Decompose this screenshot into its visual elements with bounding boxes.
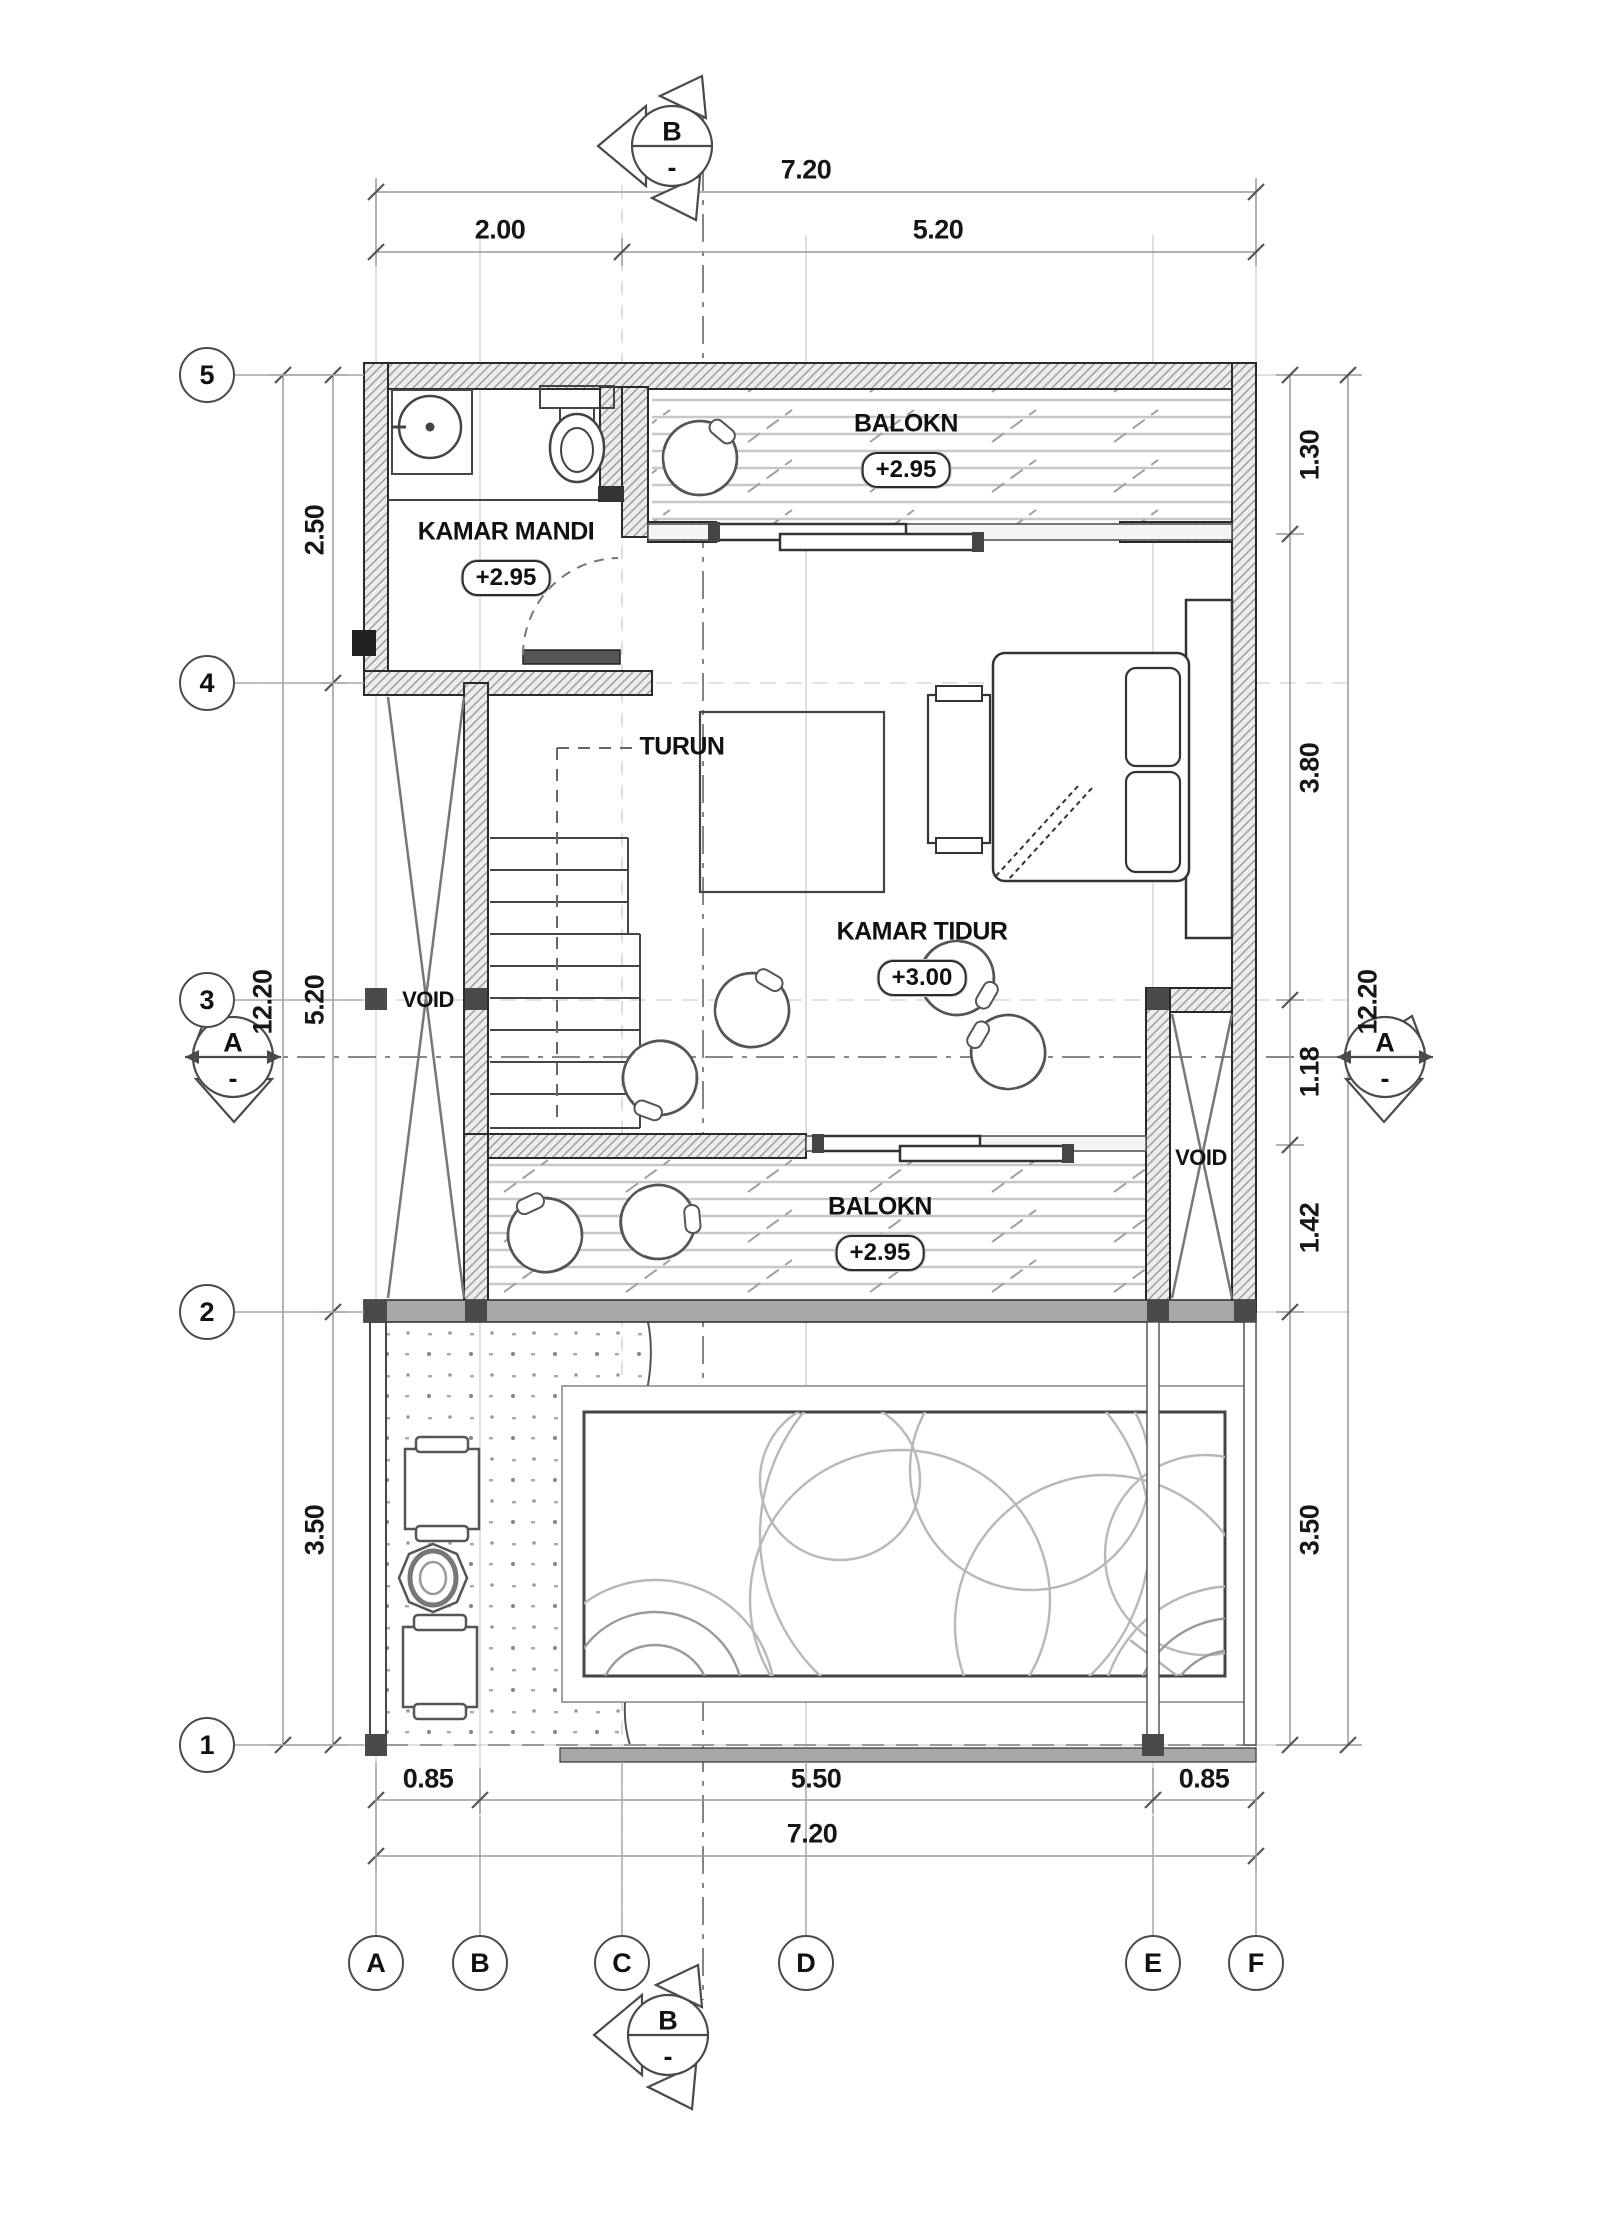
dim-right-seg-2: 3.80 (1295, 743, 1326, 794)
stairs (490, 748, 640, 1128)
dim-left-seg-2: 5.20 (300, 975, 331, 1026)
bed-pillow (1126, 668, 1180, 766)
wall-void-right-edge (1146, 988, 1170, 1312)
room-label-bathroom: KAMAR MANDI (418, 518, 594, 547)
dim-top-seg-1: 2.00 (475, 215, 526, 246)
level-badge-bedroom: +3.00 (878, 960, 967, 996)
grid-bubble-row-4: 4 (179, 655, 235, 711)
bed-bench (928, 695, 990, 843)
garden-furniture (399, 1437, 479, 1719)
balcony-mid-deck (488, 1158, 1146, 1300)
grid-bubble-row-1: 1 (179, 1717, 235, 1773)
section-a-right-sub: - (1381, 1064, 1390, 1095)
wall-balcony-mid-left (464, 1134, 488, 1312)
section-a-right-letter: A (1375, 1028, 1395, 1059)
dim-left-seg-3: 3.50 (300, 1505, 331, 1556)
dim-bottom-seg-3: 0.85 (1179, 1764, 1230, 1795)
section-b-top-letter: B (662, 117, 682, 148)
room-label-balcony-mid: BALOKN (828, 1193, 932, 1222)
dim-bottom-total: 7.20 (787, 1819, 838, 1850)
dim-right-seg-1: 1.30 (1295, 430, 1326, 481)
dim-bottom-seg-1: 0.85 (403, 1764, 454, 1795)
level-badge-balcony-mid: +2.95 (836, 1235, 925, 1271)
dim-right-seg-4: 1.42 (1295, 1203, 1326, 1254)
room-label-balcony-top: BALOKN (854, 410, 958, 439)
level-badge-bathroom: +2.95 (462, 560, 551, 596)
wall-top (364, 363, 1256, 389)
wall-right (1232, 363, 1256, 1312)
section-marker-b-top (598, 76, 712, 220)
terrace-right-fence (1244, 1322, 1256, 1745)
terrace-mid-fence (1147, 1322, 1159, 1745)
wall-row4 (364, 671, 652, 695)
wall-balcony-mid-top (464, 1134, 806, 1158)
section-b-top-sub: - (668, 153, 677, 184)
grid-bubble-col-c: C (594, 1935, 650, 1991)
dim-left-total: 12.20 (248, 969, 279, 1034)
bedroom-table (700, 712, 884, 892)
section-a-left-letter: A (223, 1028, 243, 1059)
bed-bench-cap (936, 838, 982, 853)
dim-right-seg-5: 3.50 (1295, 1505, 1326, 1556)
section-b-bottom-sub: - (664, 2042, 673, 2073)
wall-row2-band (364, 1300, 1256, 1322)
level-badge-balcony-top: +2.95 (862, 452, 951, 488)
terrace-left-fence (370, 1322, 386, 1748)
grid-bubble-col-e: E (1125, 1935, 1181, 1991)
window-balcony-top (648, 522, 1232, 552)
wall-void-left-edge (464, 683, 488, 1134)
dim-right-total: 12.20 (1353, 969, 1384, 1034)
grid-bubble-col-f: F (1228, 1935, 1284, 1991)
section-a-left-sub: - (229, 1064, 238, 1095)
bed-bench-cap (936, 686, 982, 701)
bedroom-chairs (611, 927, 1059, 1130)
floor-plan-canvas: KAMAR MANDI +2.95 BALOKN +2.95 KAMAR TID… (0, 0, 1600, 2234)
dim-right-seg-3: 1.18 (1295, 1047, 1326, 1098)
room-label-bedroom: KAMAR TIDUR (837, 918, 1008, 947)
stairs-label-turun: TURUN (640, 733, 725, 762)
door-leaf (523, 650, 620, 664)
plan-drawing (0, 0, 1600, 2234)
wall-balcony-top-left (622, 387, 648, 537)
dim-bottom-seg-2: 5.50 (791, 1764, 842, 1795)
grid-bubble-row-5: 5 (179, 347, 235, 403)
void-label-left: VOID (402, 987, 454, 1013)
sink-drain (427, 424, 434, 431)
door-stop (598, 486, 624, 502)
grid-bubble-row-3: 3 (179, 972, 235, 1028)
section-b-bottom-letter: B (658, 2006, 678, 2037)
grid-bubble-col-b: B (452, 1935, 508, 1991)
grid-bubble-col-d: D (778, 1935, 834, 1991)
wall-fixture (352, 630, 376, 656)
bed (928, 600, 1232, 938)
dim-top-seg-2: 5.20 (913, 215, 964, 246)
dim-left-seg-1: 2.50 (300, 505, 331, 556)
bed-headboard (1186, 600, 1232, 938)
garden-table (399, 1544, 467, 1612)
grid-bubble-col-a: A (348, 1935, 404, 1991)
grid-bubble-row-2: 2 (179, 1284, 235, 1340)
dim-top-total: 7.20 (781, 155, 832, 186)
bed-pillow (1126, 772, 1180, 872)
void-label-right: VOID (1175, 1145, 1227, 1171)
